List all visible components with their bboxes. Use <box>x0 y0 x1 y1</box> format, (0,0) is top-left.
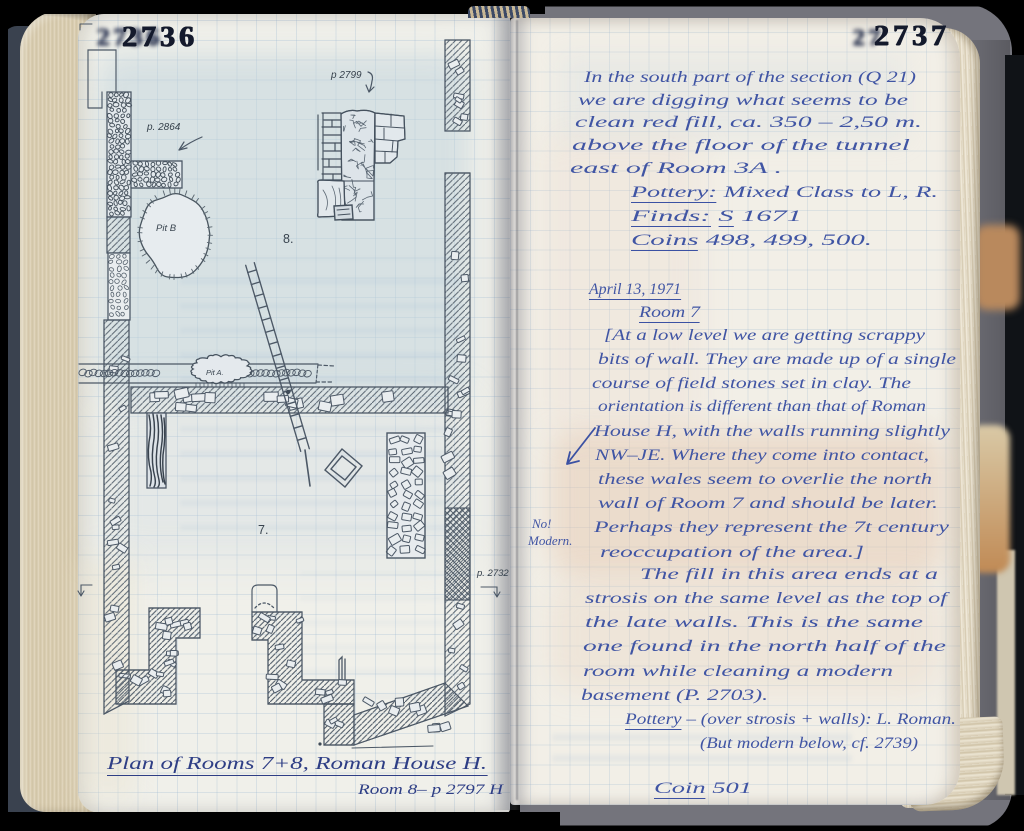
svg-text:p. 2732: p. 2732 <box>476 568 509 579</box>
svg-text:Pit A.: Pit A. <box>206 368 224 377</box>
svg-text:7.: 7. <box>258 523 268 537</box>
svg-text:p 2799: p 2799 <box>330 70 362 81</box>
svg-text:p. 2864: p. 2864 <box>146 122 181 133</box>
svg-text:Pit B: Pit B <box>156 223 177 234</box>
svg-text:8.: 8. <box>283 232 293 246</box>
